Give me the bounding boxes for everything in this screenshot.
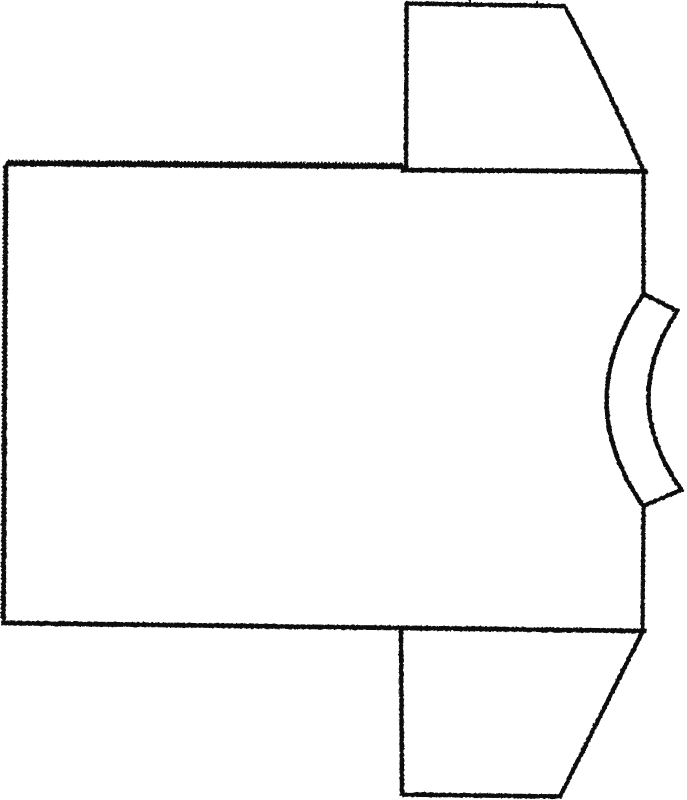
body-shoulder-edge xyxy=(403,170,646,172)
bottom-sleeve-outline xyxy=(401,628,643,797)
tshirt-pattern-diagram xyxy=(0,0,687,800)
body-side-edge-lower xyxy=(643,506,644,630)
body-hem-edge-pinked xyxy=(7,161,404,167)
top-sleeve-outline xyxy=(406,4,644,172)
pattern-shapes xyxy=(2,1,681,797)
neckband-strip xyxy=(607,294,682,506)
body-bottom-edge xyxy=(4,623,645,631)
body-left-edge-pinked xyxy=(2,166,6,623)
pattern-sheet xyxy=(0,0,687,800)
